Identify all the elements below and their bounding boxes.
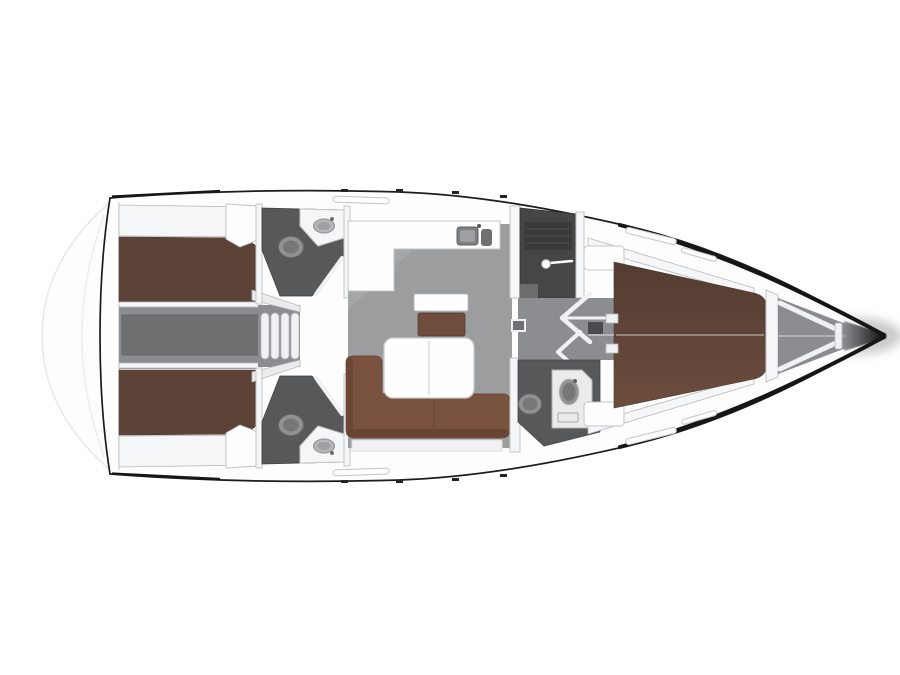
forward-head-faucet (573, 379, 577, 383)
galley-faucet (477, 224, 481, 228)
chart-table (414, 294, 468, 311)
floor-hatch (512, 320, 525, 331)
handrail-bottom-aft (333, 468, 389, 476)
saloon (346, 221, 512, 451)
galley-sink-left-basin (460, 230, 475, 242)
aft-cabin-starboard (119, 370, 258, 468)
yacht-floor-plan (0, 0, 900, 675)
bow-brace (835, 323, 842, 349)
step-2 (271, 313, 279, 359)
aft-stbd-wardrobe (226, 425, 258, 468)
wall-stbd-cabin-head (256, 368, 262, 468)
mid-bulkhead-top (510, 206, 520, 298)
aft-port-berth (119, 237, 256, 302)
shower-head-icon (542, 260, 551, 269)
galley-sink-right (481, 229, 492, 246)
step-4 (291, 313, 299, 359)
berth-step-bottom (606, 344, 618, 353)
aft-head-stbd-toilet-bowl (283, 419, 299, 432)
forward-head-toilet-bowl (523, 398, 538, 411)
floor-plan-canvas (0, 0, 900, 675)
engine-wall-bottom (119, 363, 262, 368)
cabin-step-locker (588, 322, 603, 334)
sofa-backrest (348, 429, 508, 437)
berth-step-top (606, 314, 618, 323)
step-1 (261, 313, 269, 359)
wall-port-cabin-head (256, 204, 262, 304)
shower-bench (520, 284, 538, 298)
sofa-arm (346, 358, 353, 436)
aft-head-stbd-sink-basin (318, 442, 331, 450)
aft-head-port-faucet (330, 217, 334, 221)
engine-wall-top (119, 302, 262, 307)
aft-cabin-port (119, 204, 258, 302)
aft-port-wardrobe (226, 204, 258, 247)
forward-head-sink-basin (563, 383, 576, 401)
chart-seat (418, 313, 465, 336)
aft-stbd-berth (119, 370, 256, 435)
aft-head-stbd-faucet (330, 451, 334, 455)
shower-room (520, 208, 584, 298)
engine-hatch-floor (122, 315, 262, 355)
sofa-plinth (352, 440, 502, 451)
shower-wall (576, 212, 584, 298)
aft-head-port-sink-basin (318, 222, 331, 230)
step-3 (281, 313, 289, 359)
aft-head-port-toilet-bowl (283, 241, 299, 254)
engine-compartment (119, 302, 262, 369)
handrail-top-aft (333, 196, 389, 204)
forward-bulkhead (766, 290, 778, 382)
